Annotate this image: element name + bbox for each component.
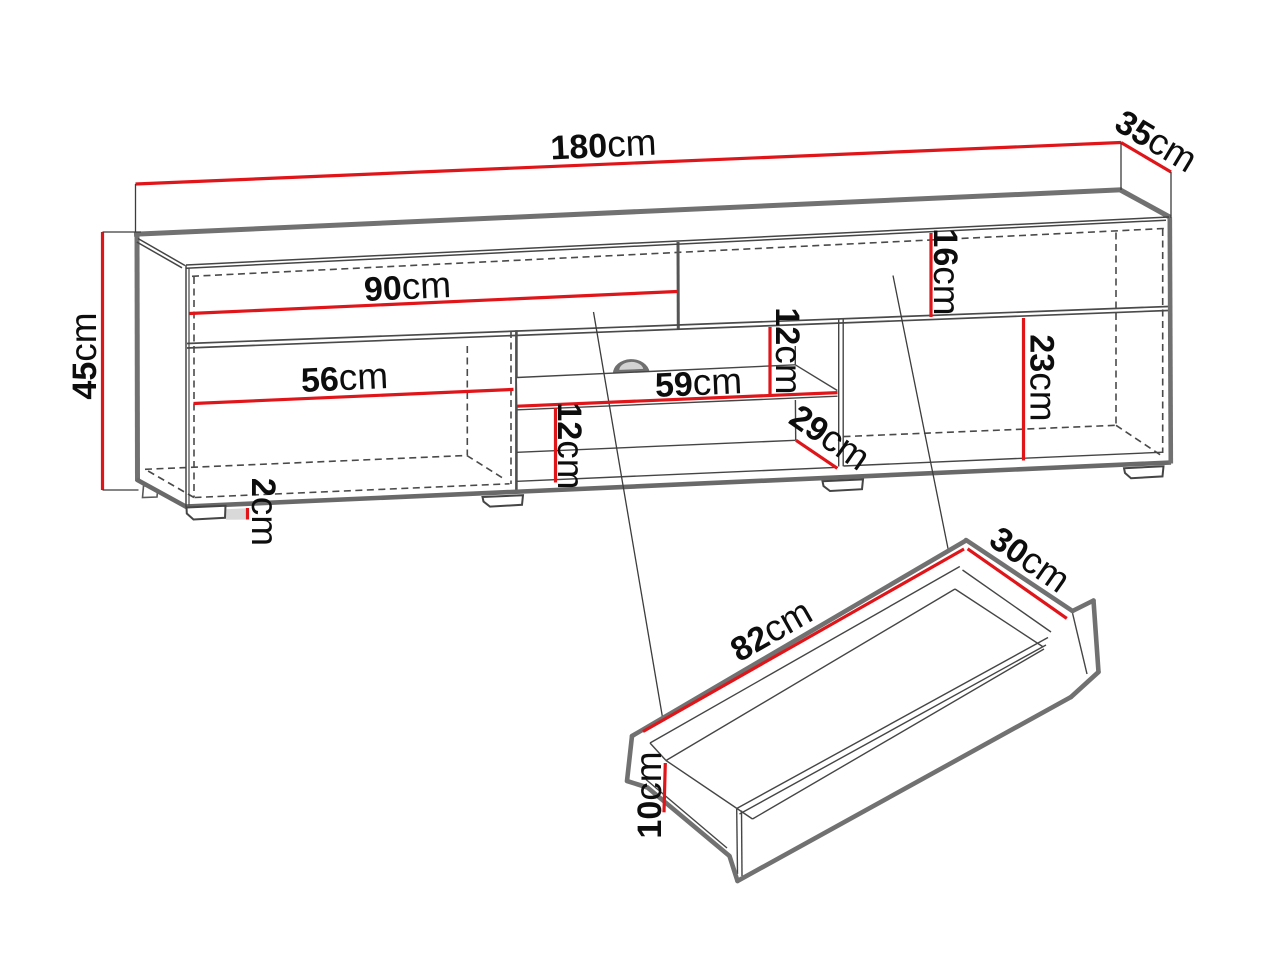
svg-text:23cm: 23cm (1023, 334, 1064, 421)
svg-text:59cm: 59cm (654, 360, 743, 405)
svg-text:12cm: 12cm (768, 307, 809, 394)
svg-text:90cm: 90cm (363, 264, 452, 309)
svg-text:45cm: 45cm (63, 312, 104, 399)
svg-text:10cm: 10cm (628, 751, 669, 838)
svg-text:56cm: 56cm (300, 355, 389, 400)
svg-text:180cm: 180cm (549, 122, 657, 168)
svg-text:16cm: 16cm (926, 228, 967, 315)
svg-text:2cm: 2cm (244, 478, 285, 546)
svg-text:12cm: 12cm (550, 402, 591, 489)
